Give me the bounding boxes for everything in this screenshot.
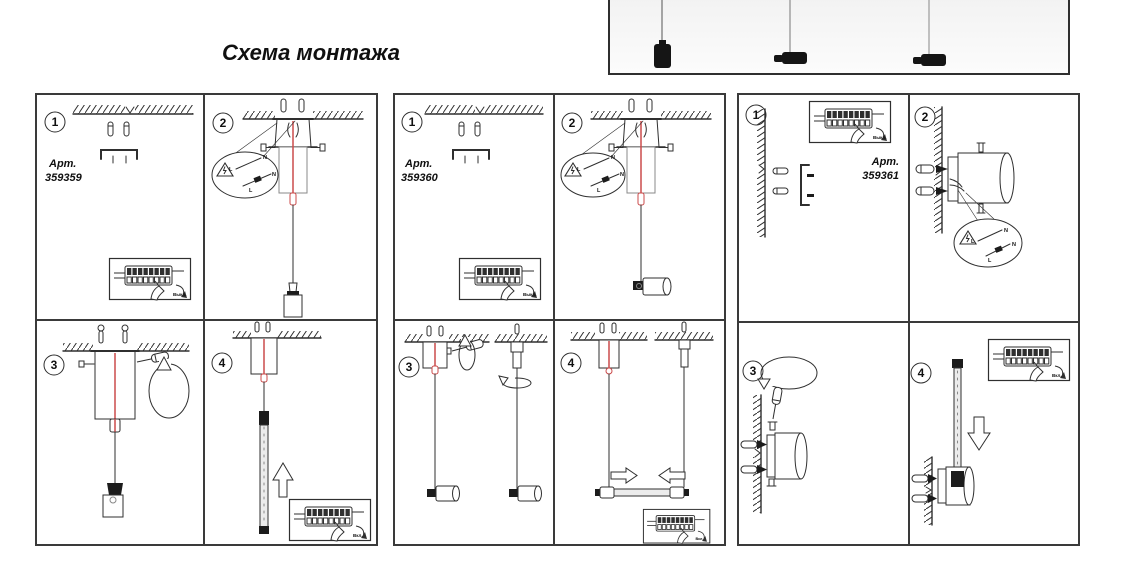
screwdriver-rotation <box>136 351 189 418</box>
svg-text:1: 1 <box>52 115 59 129</box>
step-number-badge: 3 <box>44 355 64 375</box>
mounting-bracket <box>801 165 814 205</box>
step-drawing-359360-2: 2 <box>555 95 724 319</box>
lamp-socket-shade <box>103 483 123 517</box>
mounting-screws <box>916 165 948 195</box>
power-off-inset: Выкл. <box>110 259 191 301</box>
step-drawing-359361-4: 4 Вкл. <box>908 323 1078 544</box>
step-drawing-359359-4: 4 Вкл. <box>205 321 376 544</box>
step-number-badge: 2 <box>915 107 935 127</box>
svg-text:2: 2 <box>922 110 929 124</box>
installation-diagram-sheet: Схема монтажа 1 <box>0 0 1121 577</box>
cable-lock <box>290 193 296 205</box>
art-label: Арт. <box>404 158 432 170</box>
step-drawing-359360-1: 1 Арт. 359360 Выкл. <box>395 95 551 319</box>
svg-text:4: 4 <box>918 366 925 380</box>
power-on-inset: Вкл. <box>989 340 1070 382</box>
ceiling-hatch <box>73 105 193 114</box>
spot-lamp <box>633 278 671 295</box>
anchor-pin <box>612 323 616 333</box>
cable-gripper <box>679 340 690 367</box>
svg-text:4: 4 <box>568 356 575 370</box>
arrow-right <box>611 468 637 483</box>
pendant-lamps-photo <box>610 0 1068 73</box>
mounting-screws <box>912 474 937 503</box>
panel-359360: 1 Арт. 359360 Выкл. <box>393 93 726 546</box>
wiring-magnifier-bubble: N L N L <box>212 152 278 198</box>
lamp-socket-shade <box>284 283 302 317</box>
panel-359361: 1 Выкл. Арт. 359361 <box>737 93 1080 546</box>
anchor-pin <box>281 99 286 112</box>
step-number-badge: 4 <box>911 363 931 383</box>
step-drawing-359359-2: 2 <box>205 95 376 319</box>
wiring-magnifier-bubble: N L N L <box>561 153 625 197</box>
anchor-pin <box>647 99 652 112</box>
dowel-screws <box>773 168 788 194</box>
step-number-badge: 3 <box>399 357 419 377</box>
art-number: 359359 <box>45 172 83 184</box>
step-drawing-359361-3: 3 <box>739 323 906 544</box>
step-number-badge: 2 <box>562 113 582 133</box>
dowel-screws <box>108 122 129 136</box>
mounting-bracket <box>453 150 489 163</box>
step-number-badge: 4 <box>561 353 581 373</box>
panel-359359: 1 Арт. 359359 Выкл. <box>35 93 378 546</box>
svg-text:3: 3 <box>406 360 413 374</box>
anchor-pin <box>600 323 604 333</box>
step-drawing-359360-3: 3 <box>395 321 551 544</box>
mounting-bracket <box>101 150 137 163</box>
svg-text:N: N <box>620 172 624 178</box>
screwdriver-icon <box>769 387 782 420</box>
step-drawing-359359-3: 3 <box>37 321 203 544</box>
svg-text:N: N <box>1004 228 1008 234</box>
step-drawing-359359-1: 1 Арт. 359359 Выкл. <box>37 95 203 319</box>
svg-text:Вкл.: Вкл. <box>353 533 363 538</box>
wall-hatch <box>753 395 761 513</box>
pendant-lamp-spot-1 <box>774 55 783 62</box>
svg-text:Вкл.: Вкл. <box>695 537 703 541</box>
svg-text:Выкл.: Выкл. <box>523 292 537 297</box>
svg-text:2: 2 <box>220 116 227 130</box>
step-number-badge: 2 <box>213 113 233 133</box>
power-on-inset: Вкл. <box>643 509 709 543</box>
cable-gripper <box>511 342 523 368</box>
art-number: 359360 <box>401 172 439 184</box>
screwdriver-rotation <box>758 357 817 430</box>
anchor-pin <box>299 99 304 112</box>
power-off-inset: Выкл. <box>460 259 541 301</box>
art-label: Арт. <box>48 158 76 170</box>
ceiling-hatch <box>495 334 547 342</box>
power-on-inset: Вкл. <box>290 500 371 542</box>
tube-lamp <box>952 359 963 478</box>
svg-text:Выкл.: Выкл. <box>873 135 887 140</box>
svg-text:3: 3 <box>51 358 58 372</box>
anchor-pin <box>682 322 686 332</box>
art-number: 359361 <box>862 170 899 182</box>
up-arrow <box>273 463 293 497</box>
svg-text:4: 4 <box>219 356 226 370</box>
cable-rotate-arrow <box>499 376 531 388</box>
svg-text:N: N <box>611 155 615 161</box>
anchor-pin <box>629 99 634 112</box>
step-number-badge: 3 <box>743 361 763 381</box>
svg-text:1: 1 <box>409 115 416 129</box>
dowel-screws <box>459 122 480 136</box>
step-drawing-359361-1: 1 Выкл. Арт. 359361 <box>739 95 906 321</box>
svg-text:N: N <box>272 172 276 178</box>
ceiling-hatch <box>425 105 543 114</box>
spot-lamp <box>509 486 542 501</box>
art-label: Арт. <box>871 156 899 168</box>
product-photo-strip <box>608 0 1070 75</box>
anchor-pin <box>427 326 431 336</box>
wall-lamp-base <box>948 143 1014 213</box>
power-off-inset: Выкл. <box>810 102 891 144</box>
wall-hatch <box>924 457 932 525</box>
svg-text:Выкл.: Выкл. <box>173 292 187 297</box>
svg-text:N: N <box>263 155 267 161</box>
tube-lamp-horizontal <box>595 487 689 498</box>
step-drawing-359361-2: 2 <box>908 95 1078 321</box>
ceiling-hatch <box>233 331 321 338</box>
svg-text:2: 2 <box>569 116 576 130</box>
page-title: Схема монтажа <box>222 40 400 66</box>
arrow-left <box>659 468 685 483</box>
wall-lamp-base <box>938 467 974 505</box>
cable-lock <box>638 193 644 205</box>
ceiling-hatch <box>571 332 647 340</box>
down-arrow <box>968 417 990 450</box>
anchor-pin <box>255 322 259 332</box>
wiring-magnifier-bubble: N L N L <box>954 219 1022 267</box>
pendant-lamp-spot-2 <box>913 57 922 64</box>
ceiling-canopy <box>79 351 139 419</box>
svg-text:3: 3 <box>750 364 757 378</box>
ceiling-hatch <box>63 343 189 351</box>
spot-lamp <box>427 486 460 501</box>
step-number-badge: 1 <box>402 112 422 132</box>
step-number-badge: 4 <box>212 353 232 373</box>
anchor-hooks <box>98 325 128 343</box>
step-number-badge: 1 <box>45 112 65 132</box>
anchor-pin <box>266 322 270 332</box>
step-drawing-359360-4: 4 <box>555 321 724 544</box>
anchor-pin <box>515 324 519 334</box>
wall-lamp-base <box>767 433 807 486</box>
ceiling-hatch <box>655 332 713 340</box>
anchor-pin <box>439 326 443 336</box>
svg-text:N: N <box>1012 242 1016 248</box>
svg-text:Вкл.: Вкл. <box>1052 373 1062 378</box>
wall-hatch <box>757 109 765 237</box>
tube-lamp <box>259 411 269 534</box>
